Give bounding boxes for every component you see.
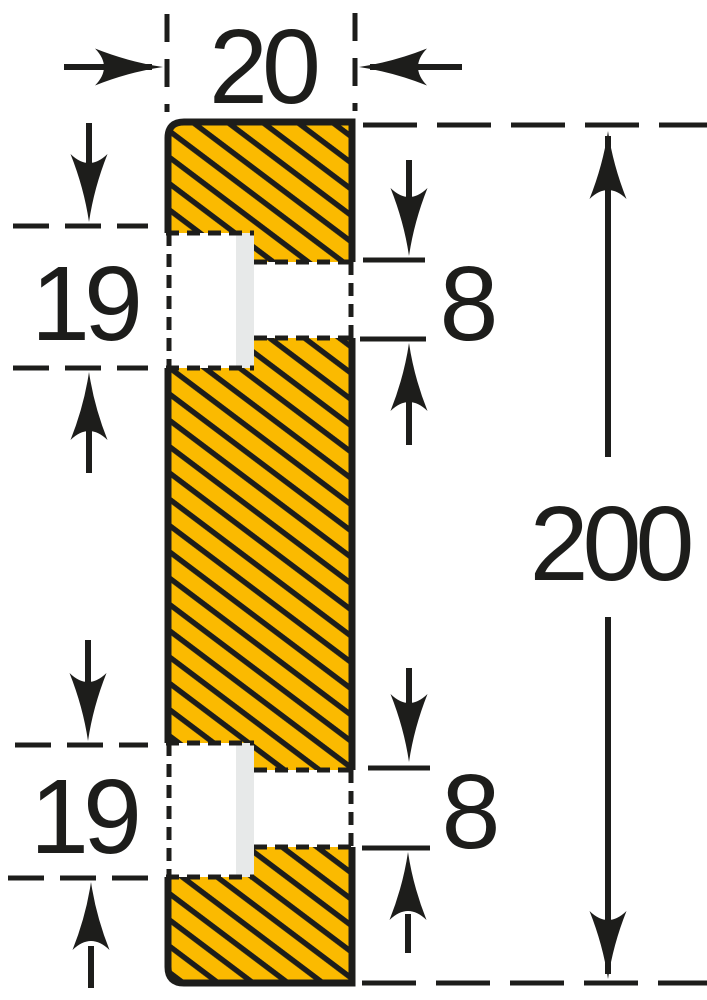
dim-notch-top: 19 — [13, 123, 148, 473]
arrow-up-icon — [73, 882, 110, 950]
dim-height: 200 — [362, 125, 707, 983]
dimension-diagram: 20 200 19 — [0, 0, 707, 1000]
dim-notch-bottom-label: 19 — [30, 758, 137, 876]
lower-recess-strip — [236, 743, 254, 877]
dim-width: 20 — [64, 8, 462, 126]
dim-hole-top: 8 — [360, 160, 495, 445]
dim-hole-bottom-label: 8 — [442, 753, 497, 871]
arrow-down-icon — [71, 154, 108, 222]
arrow-right-icon — [95, 49, 163, 86]
arrow-down-icon — [391, 694, 428, 762]
arrow-down-icon — [590, 911, 627, 979]
dim-height-label: 200 — [530, 485, 691, 603]
upper-recess-strip — [236, 233, 254, 368]
arrow-down-icon — [391, 188, 428, 256]
lower-through-hole-cutout — [254, 770, 358, 847]
dim-notch-top-label: 19 — [31, 245, 138, 363]
arrow-down-icon — [70, 673, 107, 741]
dim-width-label: 20 — [209, 8, 317, 126]
arrow-up-icon — [390, 852, 427, 920]
arrow-left-icon — [359, 49, 427, 86]
dim-notch-bottom: 19 — [8, 640, 148, 988]
arrow-up-icon — [391, 343, 428, 411]
arrow-up-icon — [71, 372, 108, 440]
arrow-up-icon — [590, 131, 627, 199]
upper-through-hole-cutout — [254, 262, 358, 338]
dim-hole-bottom: 8 — [362, 668, 497, 953]
diagram-canvas: 20 200 19 — [0, 0, 707, 1000]
dim-hole-top-label: 8 — [440, 245, 495, 363]
